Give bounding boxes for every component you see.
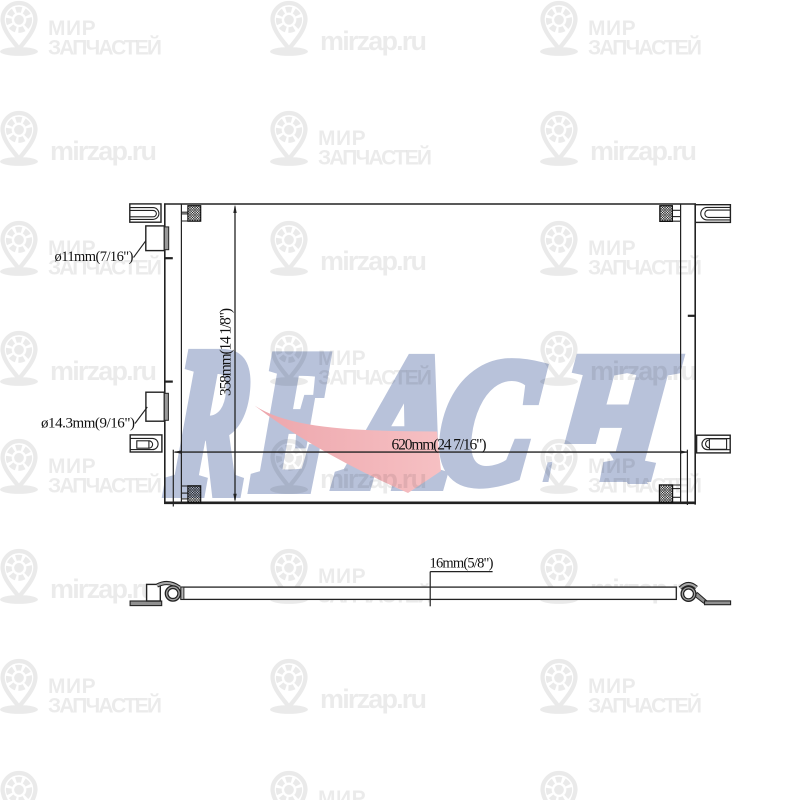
svg-text:16mm(5/8"): 16mm(5/8"): [430, 556, 494, 572]
svg-text:ø14.3mm(9/16"): ø14.3mm(9/16"): [41, 416, 135, 432]
svg-text:358mm(14 1/8"): 358mm(14 1/8"): [218, 308, 235, 396]
svg-text:620mm(24 7/16"): 620mm(24 7/16"): [392, 437, 487, 454]
svg-text:ø11mm(7/16"): ø11mm(7/16"): [55, 249, 134, 265]
